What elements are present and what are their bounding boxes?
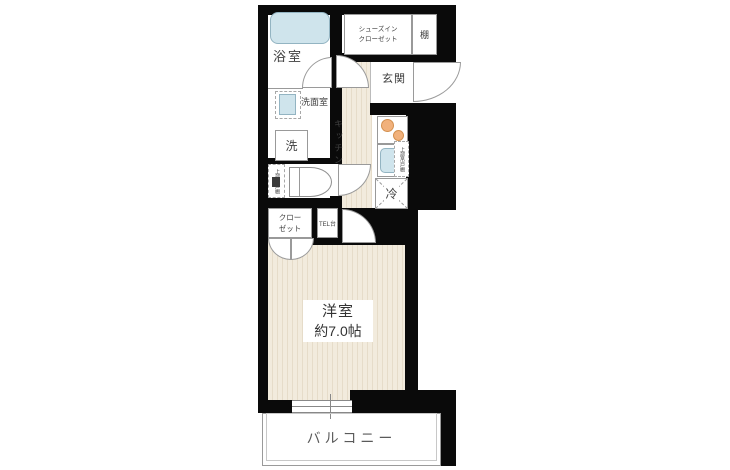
toilet-tank-divider [299,168,300,196]
kitchen-upper-cabinet-label: 上部吊戸棚 [399,147,404,172]
entrance-step-line [370,62,371,103]
bathroom-label: 浴室 [273,46,303,65]
shoe-closet-label-line2: クローゼット [359,35,398,45]
balcony-label: バルコニー [262,428,441,448]
vanity-sink [279,94,296,115]
wall-segment [405,210,418,413]
shelf-box: 棚 [412,14,437,55]
entrance-label: 玄関 [382,70,406,86]
closet-box: クロー ゼット [268,208,312,238]
toilet-remote [272,177,280,187]
entrance-door-arc [413,62,461,102]
wall-segment [370,103,408,115]
wall-segment [441,413,456,466]
western-room-label-box: 洋室 約7.0帖 [303,300,373,342]
wall-segment [258,5,268,413]
tel-stand-box: TEL台 [317,208,338,238]
bathroom-washroom-divider [268,88,303,89]
stove-burner-small [393,130,404,141]
floorplan-canvas: 浴室 シューズイン クローゼット 棚 玄関 洗面室 洗 上部吊戸棚 キッチン 上… [0,0,730,470]
toilet-bowl [289,167,332,197]
refrigerator-label: 冷 [384,185,398,202]
shoe-closet-label-line1: シューズイン [359,25,398,35]
wall-segment [258,400,292,413]
bathtub [270,12,330,44]
washing-machine-box: 洗 [275,130,308,161]
western-room-size: 約7.0帖 [314,322,361,340]
washroom-label: 洗面室 [301,95,328,108]
western-room-label: 洋室 [322,302,354,322]
shoe-closet-label: シューズイン クローゼット [344,14,412,55]
kitchen-upper-cabinet: 上部吊戸棚 [394,141,409,177]
closet-label-line1: クロー [279,212,302,223]
wall-segment [350,390,456,413]
stove-burner-large [381,119,394,132]
kitchen-label: キッチン [332,119,345,167]
closet-label-line2: ゼット [279,223,302,234]
balcony-window [292,400,352,413]
shelf-label: 棚 [420,28,429,41]
refrigerator-box: 冷 [375,178,408,209]
tel-stand-label: TEL台 [319,219,336,228]
wall-segment [312,238,342,245]
wall-segment [406,103,456,210]
washing-machine-label: 洗 [285,137,297,154]
wall-segment [258,198,342,208]
